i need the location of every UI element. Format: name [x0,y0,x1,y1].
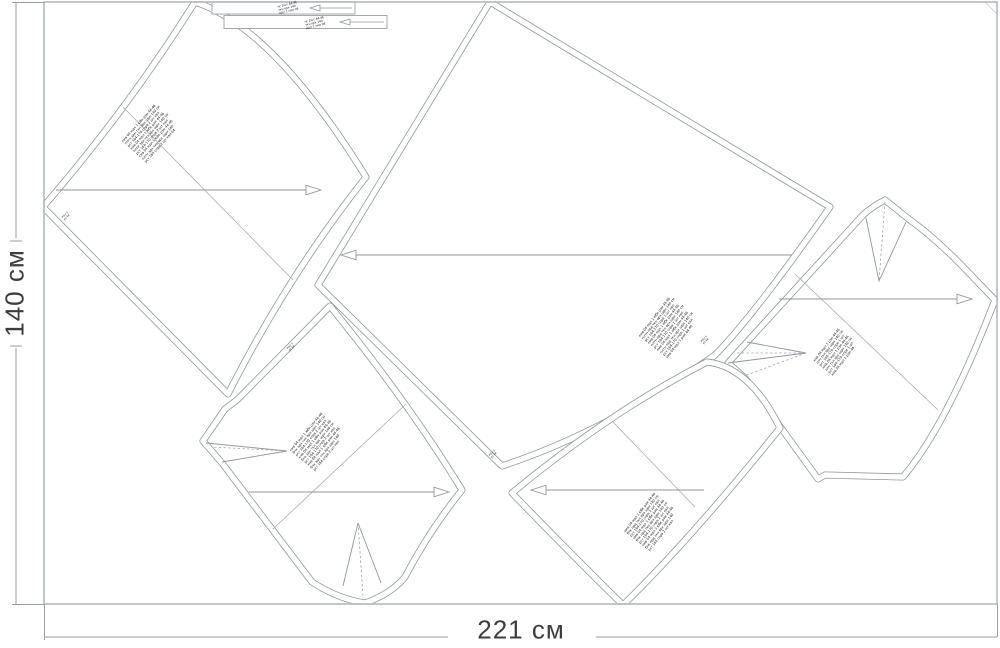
marker-geometry [0,0,1000,648]
fabric-width-label: 221 см [477,615,564,646]
marker-layout-canvas: кмв 04 мдл 1 юбк рзм 44-46плтн здн ткн в… [0,0,1000,648]
fabric-height-label: 140 см [0,249,31,336]
